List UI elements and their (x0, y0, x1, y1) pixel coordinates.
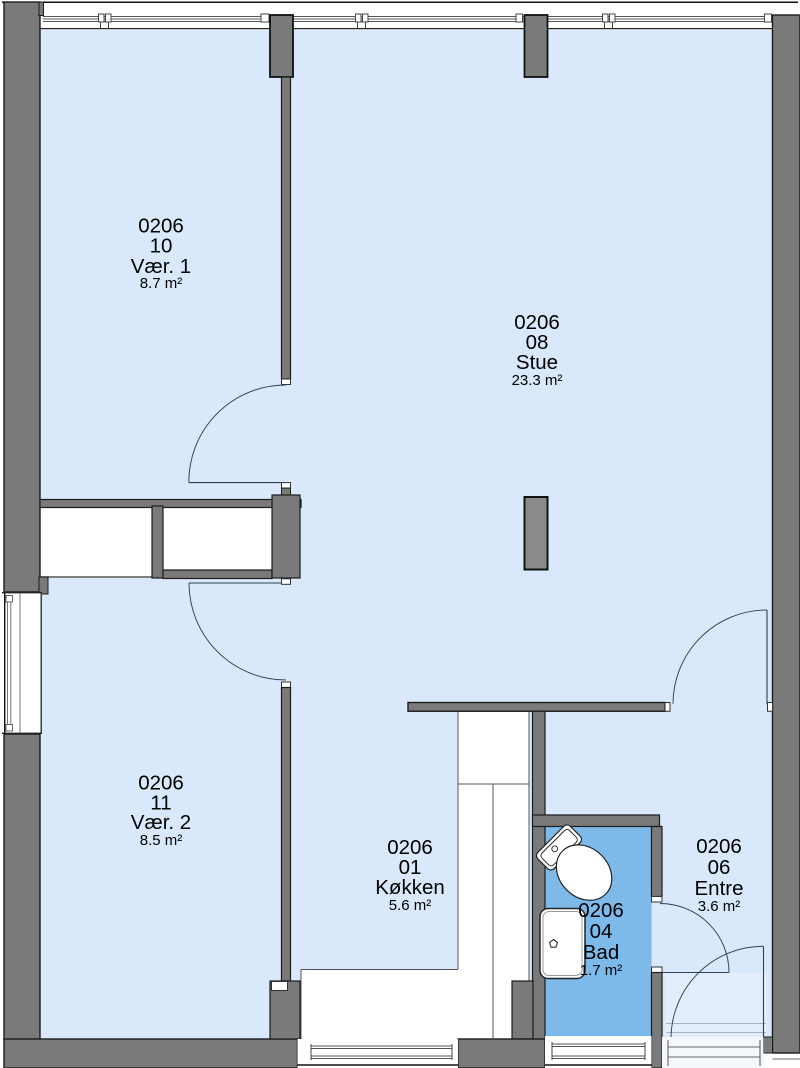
svg-text:8.5 m²: 8.5 m² (140, 832, 183, 849)
svg-text:5.6 m²: 5.6 m² (389, 897, 432, 914)
svg-text:Køkken: Køkken (375, 876, 445, 899)
svg-text:Entre: Entre (695, 877, 744, 900)
svg-text:0206: 0206 (696, 835, 742, 858)
svg-text:Vær. 2: Vær. 2 (131, 811, 191, 834)
svg-text:Bad: Bad (583, 941, 619, 964)
svg-text:23.3 m²: 23.3 m² (512, 372, 563, 389)
svg-text:Stue: Stue (516, 351, 558, 374)
svg-text:06: 06 (708, 856, 731, 879)
svg-text:8.7 m²: 8.7 m² (140, 275, 183, 292)
svg-text:1.7 m²: 1.7 m² (580, 962, 623, 979)
svg-text:3.6 m²: 3.6 m² (698, 898, 741, 915)
svg-text:04: 04 (590, 920, 613, 943)
svg-text:0206: 0206 (578, 899, 624, 922)
